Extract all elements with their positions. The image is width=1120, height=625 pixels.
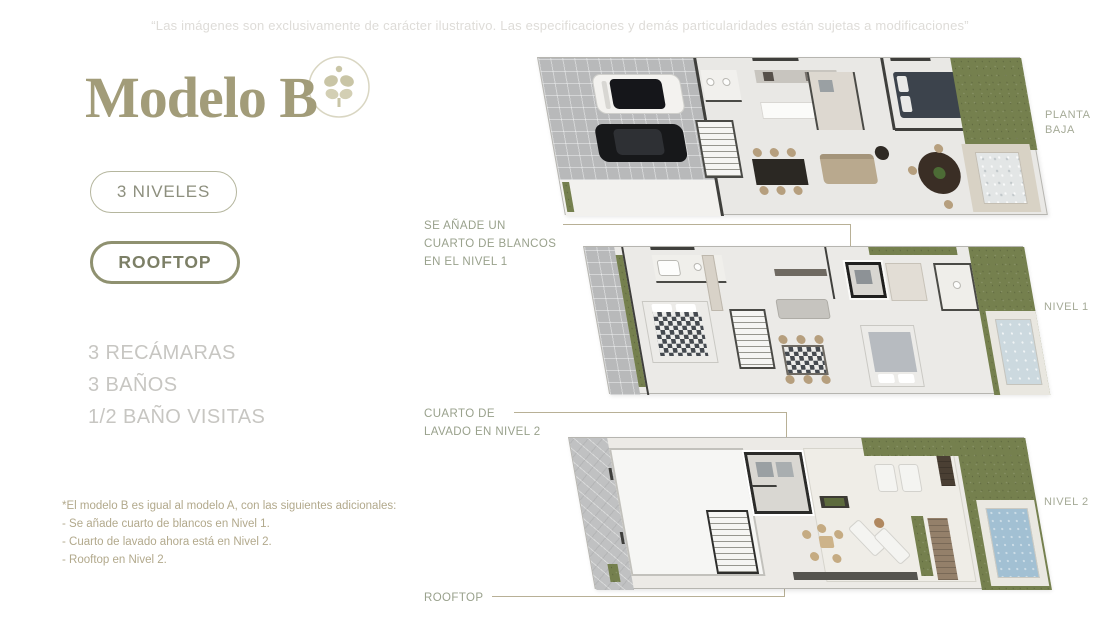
black-car (594, 124, 689, 162)
floorplan-planta-baja (537, 57, 1048, 215)
pillow (651, 304, 672, 312)
sofa (819, 154, 878, 184)
half-bathroom (700, 70, 742, 102)
plant-icon (824, 498, 845, 506)
terrace-edge (793, 572, 918, 580)
dining-chairs (778, 335, 789, 344)
sofa (775, 299, 831, 319)
pillow (898, 374, 916, 383)
dryer-icon (775, 462, 794, 477)
toilet-icon (693, 263, 702, 271)
feature-half-bath: 1/2 BAÑO VISITAS (88, 401, 265, 433)
tv-console (774, 269, 827, 276)
footnote-title: *El modelo B es igual al modelo A, con l… (62, 497, 396, 515)
white-car (591, 74, 686, 114)
car-roof-glass (609, 79, 666, 109)
lounge-table (818, 536, 834, 548)
bedroom-wall (880, 58, 896, 130)
levels-badge[interactable]: 3 NIVELES (90, 171, 237, 213)
footnote-item: - Cuarto de lavado ahora está en Nivel 2… (62, 533, 396, 551)
brochure-page: “Las imágenes son exclusivamente de cará… (0, 0, 1120, 625)
hallway (885, 263, 928, 301)
toilet-icon (706, 78, 715, 86)
side-table (874, 146, 890, 160)
lounge-chairs (801, 530, 812, 539)
dining-set (773, 333, 846, 385)
checkered-duvet (653, 312, 709, 356)
label-nivel-1: NIVEL 1 (1044, 300, 1089, 315)
bed (642, 301, 719, 363)
pillow (675, 304, 696, 312)
rooftop-badge[interactable]: ROOFTOP (90, 241, 240, 284)
page-title: Modelo B (85, 64, 317, 131)
sink-icon (722, 78, 731, 86)
wall-dash (752, 58, 799, 61)
toilet-icon (952, 281, 961, 289)
interior-wall (752, 485, 776, 487)
annotation-cuarto-blancos: SE AÑADE UN CUARTO DE BLANCOS EN EL NIVE… (424, 217, 556, 271)
wall-dash (650, 247, 695, 250)
car-roof-glass (613, 129, 666, 155)
disclaimer-text: “Las imágenes son exclusivamente de cará… (0, 18, 1120, 33)
label-nivel-2: NIVEL 2 (1044, 495, 1089, 510)
centerpiece-plant-icon (932, 167, 946, 179)
cuarto-de-blancos-room (845, 262, 887, 298)
footnote-item: - Rooftop en Nivel 2. (62, 551, 396, 569)
bed (860, 325, 925, 387)
pointer-line-blancos (563, 224, 851, 225)
staircase (729, 309, 776, 369)
annotation-rooftop: ROOFTOP (424, 589, 483, 607)
entry-walkway (560, 180, 724, 216)
garden (950, 58, 1037, 150)
pillow (896, 76, 909, 92)
levels-badge-label: 3 NIVELES (117, 182, 210, 202)
rooftop-badge-label: ROOFTOP (118, 252, 211, 273)
round-table (915, 152, 964, 194)
dining-set (746, 148, 818, 196)
hallway-closet (807, 72, 865, 130)
pillow (878, 374, 896, 383)
linen-shelf (854, 270, 872, 284)
label-planta-baja: PLANTA BAJA (1045, 108, 1091, 138)
pointer-line-lavado (514, 412, 787, 413)
hedge-strip (868, 247, 957, 255)
feature-bedrooms: 3 RECÁMARAS (88, 337, 265, 369)
bathtub-icon (656, 260, 681, 276)
washer-icon (755, 462, 774, 477)
dining-chairs (752, 148, 763, 157)
footnote-item: - Se añade cuarto de blancos en Nivel 1. (62, 515, 396, 533)
lounge-set (800, 524, 855, 564)
floorplan-nivel-2 (568, 437, 1051, 589)
dining-table (781, 345, 828, 375)
utility-unit (818, 80, 834, 92)
cuarto-de-lavado-room (744, 452, 813, 514)
pool (975, 152, 1028, 204)
pointer-line-rooftop (492, 596, 785, 597)
duvet (868, 332, 917, 372)
planter-box (819, 496, 849, 508)
feature-bathrooms: 3 BAÑOS (88, 369, 265, 401)
dining-table (752, 159, 809, 185)
stove-icon (763, 72, 775, 81)
annotation-cuarto-lavado: CUARTO DE LAVADO EN NIVEL 2 (424, 405, 541, 441)
feature-list: 3 RECÁMARAS 3 BAÑOS 1/2 BAÑO VISITAS (88, 337, 265, 433)
footnote: *El modelo B es igual al modelo A, con l… (62, 497, 396, 569)
pillow (900, 96, 913, 112)
wall-dash (890, 58, 931, 61)
floorplan-nivel-1 (583, 246, 1049, 394)
round-table-chairs (907, 166, 918, 175)
